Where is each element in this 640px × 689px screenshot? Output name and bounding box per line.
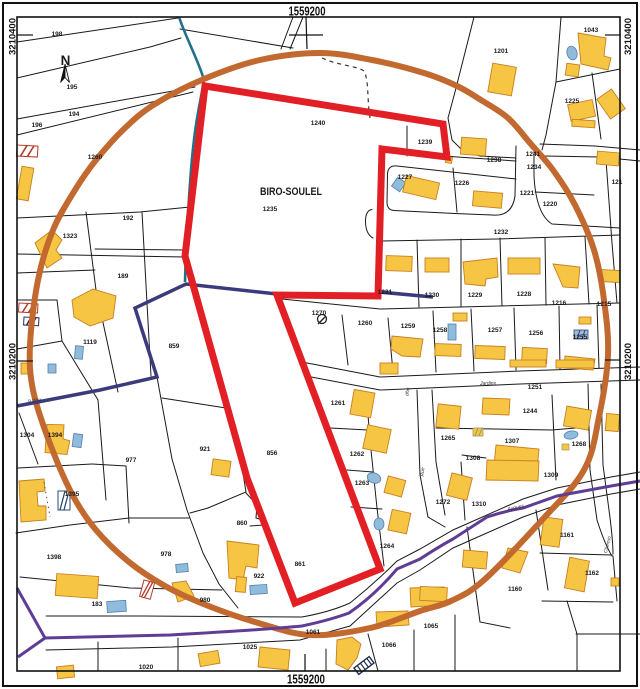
svg-text:1251: 1251 — [528, 384, 543, 391]
svg-text:1043: 1043 — [584, 27, 599, 34]
svg-text:1395: 1395 — [65, 491, 80, 498]
svg-text:1323: 1323 — [63, 233, 78, 240]
svg-text:1066: 1066 — [382, 642, 397, 649]
svg-text:1238: 1238 — [487, 157, 502, 164]
svg-text:189: 189 — [118, 273, 129, 280]
svg-text:1161: 1161 — [560, 532, 574, 539]
svg-text:1263: 1263 — [355, 480, 370, 487]
svg-text:1201: 1201 — [494, 48, 509, 55]
svg-text:1272: 1272 — [436, 499, 451, 506]
svg-text:1241: 1241 — [526, 151, 541, 158]
svg-text:3210400: 3210400 — [8, 18, 19, 55]
svg-text:921: 921 — [200, 446, 211, 453]
svg-text:1260: 1260 — [88, 154, 103, 161]
svg-text:1262: 1262 — [350, 451, 365, 458]
svg-text:860: 860 — [237, 520, 248, 527]
svg-text:1235: 1235 — [263, 206, 278, 213]
svg-text:1398: 1398 — [47, 554, 62, 561]
svg-text:3210200: 3210200 — [623, 343, 634, 380]
svg-text:1020: 1020 — [139, 664, 154, 671]
svg-text:1215: 1215 — [597, 301, 612, 308]
svg-text:198: 198 — [52, 31, 63, 38]
svg-text:1307: 1307 — [505, 438, 520, 445]
svg-text:BIRO-SOULEL: BIRO-SOULEL — [260, 186, 322, 198]
svg-text:977: 977 — [126, 457, 137, 464]
svg-text:861: 861 — [295, 561, 306, 568]
svg-text:1220: 1220 — [543, 201, 558, 208]
svg-text:196: 196 — [32, 122, 43, 129]
svg-text:1231: 1231 — [378, 289, 393, 296]
svg-text:859: 859 — [169, 343, 180, 350]
svg-text:1256: 1256 — [529, 330, 544, 337]
svg-text:1265: 1265 — [441, 435, 456, 442]
svg-text:1221: 1221 — [520, 190, 535, 197]
svg-text:1025: 1025 — [243, 644, 258, 651]
svg-text:1310: 1310 — [472, 501, 487, 508]
svg-text:1065: 1065 — [424, 623, 439, 630]
svg-text:1304: 1304 — [20, 432, 35, 439]
svg-text:1244: 1244 — [523, 408, 538, 415]
svg-text:1239: 1239 — [418, 139, 433, 146]
svg-text:1227: 1227 — [398, 174, 413, 181]
svg-text:1260: 1260 — [358, 320, 373, 327]
svg-text:1559200: 1559200 — [289, 4, 326, 19]
svg-text:1225: 1225 — [565, 98, 580, 105]
svg-text:922: 922 — [254, 573, 265, 580]
svg-text:1160: 1160 — [508, 586, 522, 593]
svg-text:Rue: Rue — [420, 467, 427, 477]
svg-text:1234: 1234 — [527, 164, 542, 171]
svg-text:1228: 1228 — [517, 291, 532, 298]
svg-text:1308: 1308 — [466, 455, 481, 462]
svg-text:Jardins: Jardins — [479, 381, 497, 387]
svg-text:1240: 1240 — [311, 120, 326, 127]
svg-text:1257: 1257 — [488, 327, 503, 334]
svg-text:1061: 1061 — [306, 629, 321, 636]
svg-text:121: 121 — [612, 179, 623, 186]
svg-text:1264: 1264 — [380, 543, 395, 550]
svg-text:1261: 1261 — [331, 400, 346, 407]
svg-text:194: 194 — [69, 111, 80, 118]
svg-text:1229: 1229 — [468, 292, 483, 299]
svg-text:980: 980 — [200, 597, 211, 604]
svg-text:3210400: 3210400 — [623, 18, 634, 55]
svg-text:1226: 1226 — [455, 180, 470, 187]
svg-text:195: 195 — [67, 84, 78, 91]
svg-text:978: 978 — [161, 551, 172, 558]
svg-text:192: 192 — [123, 215, 134, 222]
svg-text:1216: 1216 — [552, 300, 567, 307]
svg-text:1270: 1270 — [312, 310, 327, 317]
svg-text:856: 856 — [267, 450, 278, 457]
svg-text:1119: 1119 — [83, 339, 97, 346]
svg-text:183: 183 — [92, 601, 103, 608]
svg-text:1258: 1258 — [433, 327, 448, 334]
svg-text:1255: 1255 — [573, 334, 588, 341]
svg-text:1259: 1259 — [401, 323, 416, 330]
svg-text:1232: 1232 — [494, 229, 509, 236]
svg-text:1394: 1394 — [48, 432, 63, 439]
svg-text:1268: 1268 — [572, 441, 587, 448]
svg-text:3210200: 3210200 — [8, 343, 19, 380]
svg-text:1559200: 1559200 — [287, 672, 325, 687]
svg-text:1162: 1162 — [585, 570, 599, 577]
svg-text:1230: 1230 — [425, 292, 440, 299]
svg-text:1309: 1309 — [544, 472, 559, 479]
